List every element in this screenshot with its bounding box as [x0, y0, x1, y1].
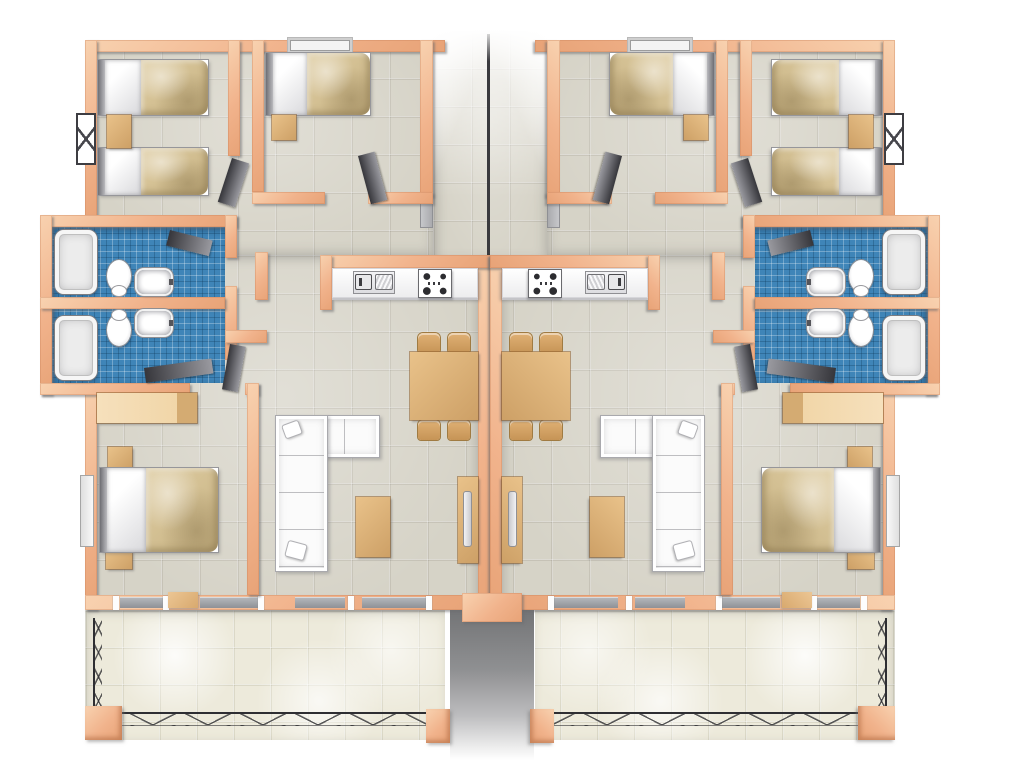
bed-headboard	[98, 60, 105, 115]
bathtub	[55, 230, 97, 294]
toilet	[107, 314, 131, 346]
bedroom-double-wall-right	[721, 383, 733, 595]
bathroom-sink	[137, 270, 171, 294]
kitchen-sink	[585, 271, 627, 294]
bedroom-single-wall-bottom-left	[252, 192, 325, 204]
balcony-railing-bottom	[96, 712, 430, 726]
bed-blanket	[772, 148, 839, 195]
toilet	[849, 260, 873, 292]
stove	[528, 269, 562, 298]
tv	[463, 491, 472, 547]
kitchen-wall-top	[490, 255, 660, 268]
kitchen-wall-top	[320, 255, 490, 268]
balcony-post-outer	[85, 706, 122, 740]
bedroom-twin-wall-right	[740, 40, 752, 156]
bedroom-single-wall-left	[252, 40, 264, 192]
nightstand	[684, 115, 708, 140]
hall-wall-stub-vertical	[712, 252, 725, 300]
bathroom-wall-right-upper	[743, 215, 755, 258]
sliding-door	[554, 597, 618, 608]
nightstand	[848, 447, 872, 468]
tv	[508, 491, 517, 547]
coffee-table	[356, 497, 390, 557]
party-wall	[478, 255, 490, 610]
slider-jamb	[113, 596, 119, 610]
coffee-table	[590, 497, 624, 557]
twin-bed-2	[772, 148, 882, 195]
slider-jamb	[348, 596, 354, 610]
sliding-door	[817, 597, 860, 608]
dining-chair	[448, 333, 470, 353]
kitchen-sink-drainer	[375, 274, 393, 290]
bathroom-divider-wall	[40, 297, 225, 309]
bed-headboard	[707, 53, 714, 115]
bedroom-single-wall-bottom-left	[655, 192, 728, 204]
nightstand	[849, 115, 873, 148]
bedroom-twin-window	[884, 113, 904, 165]
bed-blanket	[610, 53, 673, 115]
sliding-door	[362, 597, 426, 608]
party-wall	[490, 255, 502, 610]
hall-wall-stub-vertical	[255, 252, 268, 300]
slider-jamb	[626, 596, 632, 610]
balcony-step	[168, 592, 198, 608]
toilet	[849, 314, 873, 346]
slider-jamb	[258, 596, 264, 610]
balcony-railing-left	[878, 618, 887, 720]
dining-chair	[540, 420, 562, 440]
bed-pillow	[673, 53, 707, 115]
bathroom-divider-wall	[755, 297, 940, 309]
sliding-door	[722, 597, 780, 608]
slider-jamb	[716, 596, 722, 610]
twin-bed-1	[772, 60, 882, 115]
single-bed	[610, 53, 714, 115]
bed-headboard	[873, 468, 880, 552]
bathtub	[883, 230, 925, 294]
dining-chair	[510, 333, 532, 353]
bedroom-double-window	[80, 475, 94, 547]
nightstand	[107, 115, 131, 148]
bedroom-double-window	[886, 475, 900, 547]
bathroom-sink	[137, 311, 171, 335]
bed-headboard	[100, 468, 107, 552]
balcony-railing-bottom	[550, 712, 884, 726]
bedroom-single-window	[628, 38, 692, 53]
bathroom-sink	[809, 311, 843, 335]
nightstand	[272, 115, 296, 140]
balcony-railing-left	[93, 618, 102, 720]
bathroom-wall-top	[743, 215, 940, 227]
bed-headboard	[266, 53, 273, 115]
dining-chair	[510, 420, 532, 440]
bed-blanket	[141, 148, 208, 195]
sliding-door	[295, 597, 345, 608]
kitchen-sink-drainer	[587, 274, 605, 290]
bed-blanket	[146, 468, 218, 552]
double-bed	[100, 468, 218, 552]
double-bed	[762, 468, 880, 552]
wardrobe	[97, 393, 197, 423]
kitchen-sink	[353, 271, 395, 294]
dining-table	[410, 352, 478, 420]
slider-jamb	[861, 596, 867, 610]
bed-pillow	[839, 60, 875, 115]
kitchen-sink-basin	[608, 274, 625, 290]
bed-pillow	[273, 53, 307, 115]
bedroom-single-window	[288, 38, 352, 53]
toilet	[107, 260, 131, 292]
bed-pillow	[107, 468, 146, 552]
floor-plan	[0, 0, 1024, 768]
bathtub	[883, 316, 925, 380]
hall-wall-stub-horizontal	[713, 330, 755, 343]
stove	[418, 269, 452, 298]
dining-chair	[540, 333, 562, 353]
dining-chair	[448, 420, 470, 440]
bed-pillow	[105, 148, 141, 195]
bedroom-single-wall-left	[716, 40, 728, 192]
kitchen-wall-return	[320, 255, 332, 310]
bedroom-single-wall-right	[547, 40, 560, 197]
bed-headboard	[875, 148, 882, 195]
party-wall-base	[462, 593, 522, 622]
balcony-post-inner	[530, 709, 554, 743]
apartment-right	[490, 30, 940, 745]
slider-jamb	[426, 596, 432, 610]
dining-chair	[418, 420, 440, 440]
bedroom-twin-window	[76, 113, 96, 165]
nightstand	[108, 447, 132, 468]
sliding-door	[635, 597, 685, 608]
bathtub	[55, 316, 97, 380]
bathroom-wall-right-upper	[225, 215, 237, 258]
bathroom-sink	[809, 270, 843, 294]
bed-blanket	[772, 60, 839, 115]
wardrobe	[783, 393, 883, 423]
sliding-door	[120, 597, 163, 608]
bed-blanket	[762, 468, 834, 552]
bedroom-single-wall-right	[420, 40, 433, 197]
twin-bed-1	[98, 60, 208, 115]
bed-blanket	[141, 60, 208, 115]
slider-jamb	[548, 596, 554, 610]
balcony-step	[782, 592, 812, 608]
hall-wall-stub-horizontal	[225, 330, 267, 343]
twin-bed-2	[98, 148, 208, 195]
kitchen-wall-return	[648, 255, 660, 310]
dining-chair	[418, 333, 440, 353]
bed-pillow	[834, 468, 873, 552]
balcony-post-outer	[858, 706, 895, 740]
dining-table	[502, 352, 570, 420]
bathroom-wall-top	[40, 215, 237, 227]
apartment-left	[40, 30, 490, 745]
kitchen-sink-basin	[355, 274, 372, 290]
bed-headboard	[875, 60, 882, 115]
bed-blanket	[307, 53, 370, 115]
balcony-post-inner	[426, 709, 450, 743]
bed-pillow	[105, 60, 141, 115]
single-bed	[266, 53, 370, 115]
bed-headboard	[98, 148, 105, 195]
bedroom-double-wall-right	[247, 383, 259, 595]
bedroom-twin-wall-right	[228, 40, 240, 156]
outer-wall-top	[85, 40, 445, 52]
sliding-door	[200, 597, 258, 608]
outer-wall-top	[535, 40, 895, 52]
bed-pillow	[839, 148, 875, 195]
